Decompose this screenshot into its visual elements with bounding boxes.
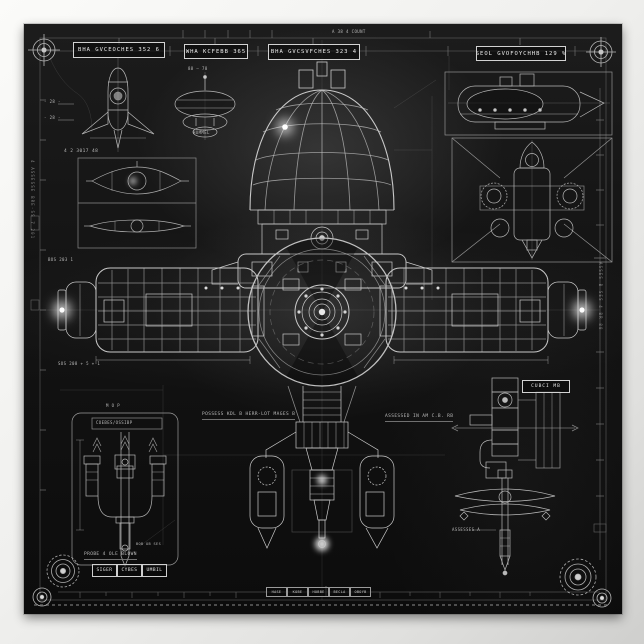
title-box-4-label: SEOL GVOFOYCHHB 129 % bbox=[476, 51, 566, 57]
caption-underline bbox=[385, 421, 453, 422]
caption-panel-sub: BOS 203 1 bbox=[48, 257, 73, 262]
title-box-3-label: BHA GVCSVFCHES 323 4 bbox=[271, 49, 357, 55]
caption-center-left-text: POSSESS KDL B HERR-LOT MAGES B bbox=[202, 412, 295, 417]
mech2-tag-label: CUBCI MB bbox=[531, 384, 561, 389]
title-box-2: WHA KCFEBB 365 bbox=[184, 44, 248, 59]
right-edge-vertical-text: ASSES B SES 4 BR 88 bbox=[598, 262, 603, 331]
caption-left-note: SOS 208 + 5 + 1 bbox=[58, 361, 100, 366]
left-edge-vertical-text: 4 ASSESSE BRE-SS 7 201 bbox=[30, 160, 35, 239]
title-box-3: BHA GVCSVFCHES 323 4 bbox=[268, 44, 360, 60]
title-box-4: SEOL GVOFOYCHHB 129 % bbox=[476, 46, 566, 61]
footer-cell-5: OBOYB bbox=[350, 587, 371, 597]
caption-dim-b: - 28 - bbox=[44, 115, 61, 120]
caption-mech-extra: BOB OB SES bbox=[136, 542, 161, 546]
caption-panel-note: 4 2 3017 48 bbox=[64, 149, 98, 155]
footer-cell-4: BECLA bbox=[329, 587, 350, 597]
caption-saucer-bottom: HUMMEL bbox=[193, 130, 210, 135]
footer-cell-3: HOBBE bbox=[308, 587, 329, 597]
caption-mech-text: PROBE 4 OLE BLOWN bbox=[84, 552, 137, 557]
caption-top-right-note: A 38 4 COUNT bbox=[332, 29, 366, 34]
name-plate: SIGER CYBES UMBIL bbox=[92, 564, 167, 577]
footer-scale-cells: HASE KOBE HOBBE BECLA OBOYB bbox=[266, 587, 371, 597]
mech2-tag-box: CUBCI MB bbox=[522, 380, 570, 393]
blueprint-poster bbox=[24, 24, 622, 614]
caption-mech-title: COEBES/OSSIBP bbox=[96, 420, 133, 425]
title-box-1: BHA GVCEOCHES 352 6 bbox=[73, 42, 165, 58]
caption-mech-note: M O P bbox=[106, 403, 120, 408]
caption-dim-a: - 28 - bbox=[44, 99, 61, 104]
title-box-2-label: WHA KCFEBB 365 bbox=[186, 49, 246, 55]
caption-underline bbox=[202, 419, 295, 420]
name-cell-1: SIGER bbox=[92, 564, 117, 577]
poster-photo: BHA GVCEOCHES 352 6 WHA KCFEBB 365 BHA G… bbox=[0, 0, 644, 644]
caption-center-left: POSSESS KDL B HERR-LOT MAGES B bbox=[202, 412, 295, 420]
caption-mech2: ASSESSES A bbox=[452, 527, 480, 532]
title-box-1-label: BHA GVCEOCHES 352 6 bbox=[78, 47, 160, 53]
footer-cell-1: HASE bbox=[266, 587, 287, 597]
caption-mech: PROBE 4 OLE BLOWN bbox=[84, 552, 137, 560]
name-cell-2: CYBES bbox=[117, 564, 142, 577]
name-cell-3: UMBIL bbox=[142, 564, 167, 577]
caption-center-right-text: ASSESSED IN AM C.B. RB bbox=[385, 414, 453, 419]
caption-underline bbox=[84, 559, 137, 560]
caption-center-right: ASSESSED IN AM C.B. RB bbox=[385, 414, 453, 422]
footer-cell-2: KOBE bbox=[287, 587, 308, 597]
caption-saucer-top: 88 — 78 bbox=[188, 66, 208, 71]
bottom-dash-texture bbox=[34, 604, 609, 606]
